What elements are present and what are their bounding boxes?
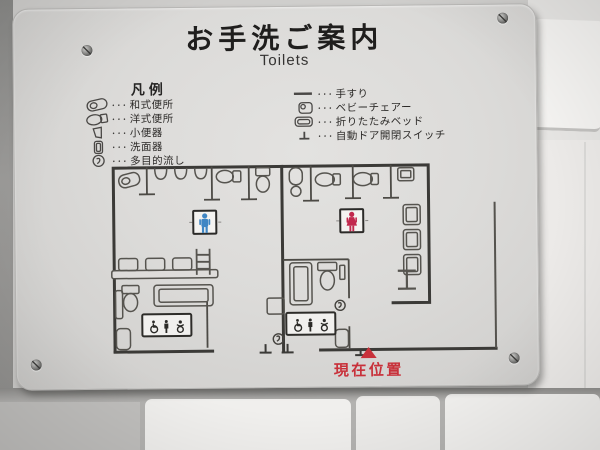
- tiled-wall-bottom: [0, 388, 600, 450]
- handrail-bench: [115, 291, 122, 319]
- urinal-icon: [84, 126, 109, 140]
- legend-dots: ･･･: [317, 115, 334, 128]
- western-toilet-icon: [84, 112, 109, 126]
- legend-dots: ･･･: [111, 98, 128, 111]
- baby-chair: [398, 168, 414, 181]
- current-location-label: 現在位置: [313, 358, 425, 380]
- legend-label: 自動ドア開閉スイッチ: [336, 127, 446, 143]
- legend-dots: ･･･: [111, 126, 128, 139]
- floor-plan-map: [106, 157, 513, 361]
- legend-left-column: ･･･ 和式便所 ･･･ 洋式便所 ･･･ 小便器: [84, 98, 185, 167]
- wall-tile: [145, 399, 351, 450]
- photo-of-toilet-guide-sign: お手洗ご案内 Toilets 凡例 ･･･ 和式便所 ･･･ 洋式便所: [0, 0, 600, 450]
- legend-item: ･･･ 和式便所: [84, 98, 185, 111]
- baby-chair-icon: [290, 101, 315, 115]
- legend-label: 洋式便所: [130, 111, 174, 126]
- squat-toilet: [117, 171, 141, 189]
- washbasin: [116, 329, 130, 350]
- handrail: [340, 265, 345, 279]
- western-toilet: [289, 168, 302, 197]
- handrail-icon: [290, 87, 315, 101]
- wall-tile: [356, 396, 440, 450]
- legend-label: 手すり: [335, 86, 368, 101]
- multipurpose-sink-marker: [335, 300, 345, 310]
- western-toilet: [315, 173, 340, 186]
- accessible-toilet: [318, 262, 337, 290]
- legend-dots: ･･･: [111, 112, 128, 125]
- accessible-toilet: [122, 285, 139, 311]
- squat-toilet-icon: [84, 98, 109, 112]
- legend-dots: ･･･: [317, 129, 334, 142]
- legend-item: ･･･ 折りたたみベッド: [290, 114, 446, 128]
- current-location-marker: 現在位置: [313, 346, 425, 380]
- legend-label: 小便器: [130, 125, 163, 140]
- wall-tile: [0, 402, 140, 450]
- wall-tile: [445, 394, 600, 450]
- folding-bed: [154, 285, 213, 307]
- urinals: [155, 168, 207, 180]
- legend-item: ･･･ 洗面器: [84, 140, 185, 153]
- folding-bed: [290, 263, 312, 305]
- western-toilet: [256, 168, 270, 193]
- womens-room-pictogram: [336, 209, 368, 232]
- legend-item: ･･･ ベビーチェアー: [290, 100, 446, 114]
- legend-item: ･･･ 小便器: [84, 126, 185, 139]
- wall-edge-left: [0, 0, 13, 450]
- western-toilet: [216, 170, 241, 183]
- screw-icon: [31, 359, 42, 370]
- accessible-signage-box: [142, 312, 335, 336]
- folding-bench: [398, 271, 416, 289]
- washbasin-icon: [84, 139, 109, 154]
- legend-item: ･･･ 洋式便所: [84, 112, 185, 125]
- tiled-wall-right: [528, 0, 600, 450]
- wall-tile: [536, 140, 600, 430]
- mens-room-fixtures: [111, 167, 284, 350]
- washbasin: [335, 329, 348, 347]
- legend-right-column: ･･･ 手すり ･･･ ベビーチェアー ･･･ 折りたたみベッド: [290, 86, 446, 142]
- toilet-guide-sign-panel: お手洗ご案内 Toilets 凡例 ･･･ 和式便所 ･･･ 洋式便所: [12, 3, 540, 390]
- legend-dots: ･･･: [317, 87, 334, 100]
- auto-door-switch-icon: [290, 129, 315, 143]
- legend-item: ･･･ 手すり: [290, 86, 446, 100]
- tile-groove: [584, 142, 586, 430]
- mens-room-pictogram: [189, 211, 221, 234]
- legend-item: ･･･ 自動ドア開閉スイッチ: [290, 128, 446, 142]
- legend-dots: ･･･: [317, 101, 334, 114]
- washbasins: [119, 258, 192, 271]
- washbasins-right-wall: [403, 204, 421, 274]
- legend-label: 洗面器: [130, 139, 163, 154]
- western-toilet: [353, 172, 378, 185]
- legend-dots: ･･･: [111, 140, 128, 153]
- location-arrow-icon: [361, 347, 377, 358]
- folding-bed-icon: [290, 115, 315, 129]
